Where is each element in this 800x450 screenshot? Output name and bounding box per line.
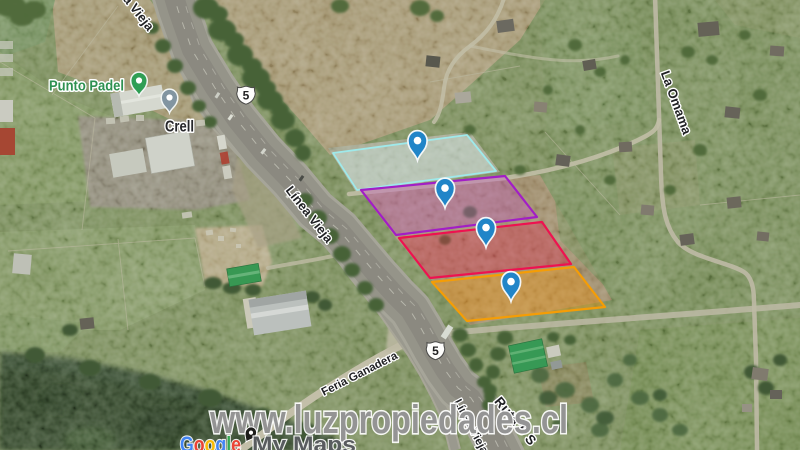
svg-text:My Maps: My Maps [252, 432, 356, 450]
svg-text:5: 5 [243, 89, 250, 103]
svg-text:Punto Padel: Punto Padel [49, 79, 124, 95]
svg-text:5: 5 [432, 344, 439, 358]
svg-text:Crell: Crell [165, 119, 194, 136]
svg-text:Google: Google [180, 432, 241, 450]
